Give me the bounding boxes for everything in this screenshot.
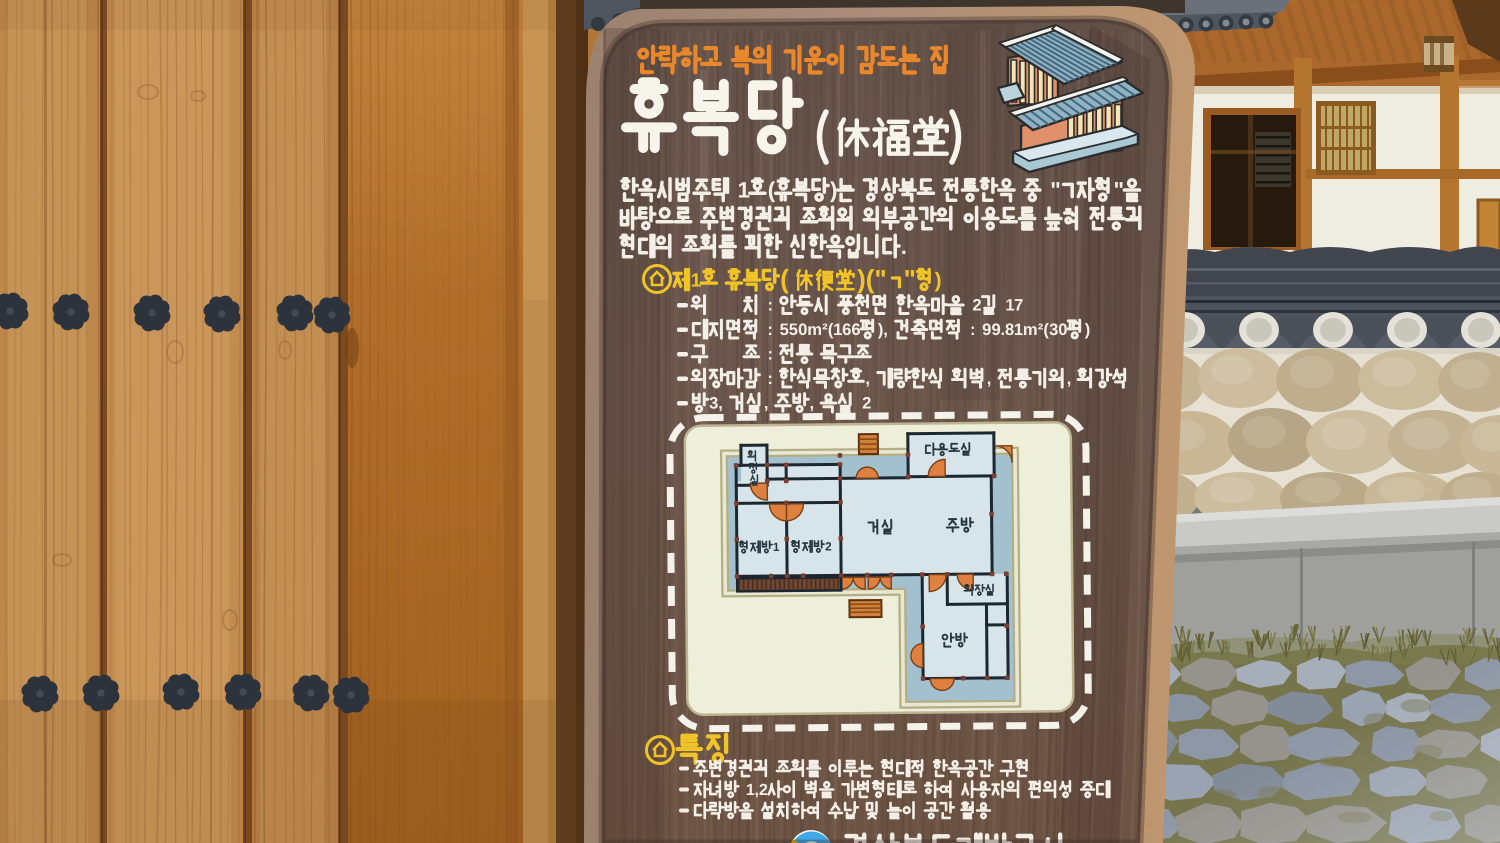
svg-text:): ) <box>830 178 837 203</box>
svg-text:0: 0 <box>1058 320 1067 339</box>
svg-text::: : <box>970 320 976 339</box>
svg-text::: : <box>768 296 774 315</box>
svg-text:1: 1 <box>773 540 780 554</box>
svg-text:.: . <box>901 234 907 259</box>
svg-text:1: 1 <box>833 320 842 339</box>
svg-text:,: , <box>987 369 992 388</box>
svg-text:1: 1 <box>691 271 702 292</box>
svg-text:3: 3 <box>1049 320 1058 339</box>
svg-text:5: 5 <box>789 320 798 339</box>
svg-text:)(": )(" <box>857 264 887 294</box>
svg-text::: : <box>767 320 773 339</box>
svg-text:,: , <box>865 369 870 388</box>
svg-text:": " <box>1114 178 1125 203</box>
svg-text:3: 3 <box>709 394 718 413</box>
svg-text:,: , <box>809 394 814 413</box>
svg-text:m: m <box>1023 320 1038 339</box>
svg-text:,: , <box>883 320 888 339</box>
svg-text:,: , <box>1067 369 1072 388</box>
svg-text:": " <box>1050 178 1061 203</box>
svg-text:2: 2 <box>862 394 871 413</box>
svg-text:2: 2 <box>825 539 832 553</box>
svg-text:9: 9 <box>991 320 1000 339</box>
svg-text:2: 2 <box>972 296 981 315</box>
svg-text:6: 6 <box>842 320 851 339</box>
svg-text::: : <box>768 345 774 364</box>
svg-text::: : <box>767 369 773 388</box>
svg-text:6: 6 <box>851 320 860 339</box>
svg-text:): ) <box>1085 320 1091 339</box>
svg-text:0: 0 <box>798 320 807 339</box>
svg-text:): ) <box>935 269 942 292</box>
svg-text:5: 5 <box>780 320 789 339</box>
svg-text:": " <box>904 264 916 294</box>
svg-text:m: m <box>807 320 822 339</box>
svg-text:(: ( <box>780 264 789 294</box>
svg-text:9: 9 <box>982 320 991 339</box>
svg-text:,: , <box>718 394 723 413</box>
svg-text:1: 1 <box>737 178 749 203</box>
svg-text:,: , <box>764 394 769 413</box>
svg-text:(: ( <box>768 178 776 203</box>
svg-text:7: 7 <box>1014 296 1023 315</box>
svg-text:2: 2 <box>759 781 768 799</box>
svg-text:1: 1 <box>1014 320 1023 339</box>
svg-text:8: 8 <box>1005 320 1014 339</box>
